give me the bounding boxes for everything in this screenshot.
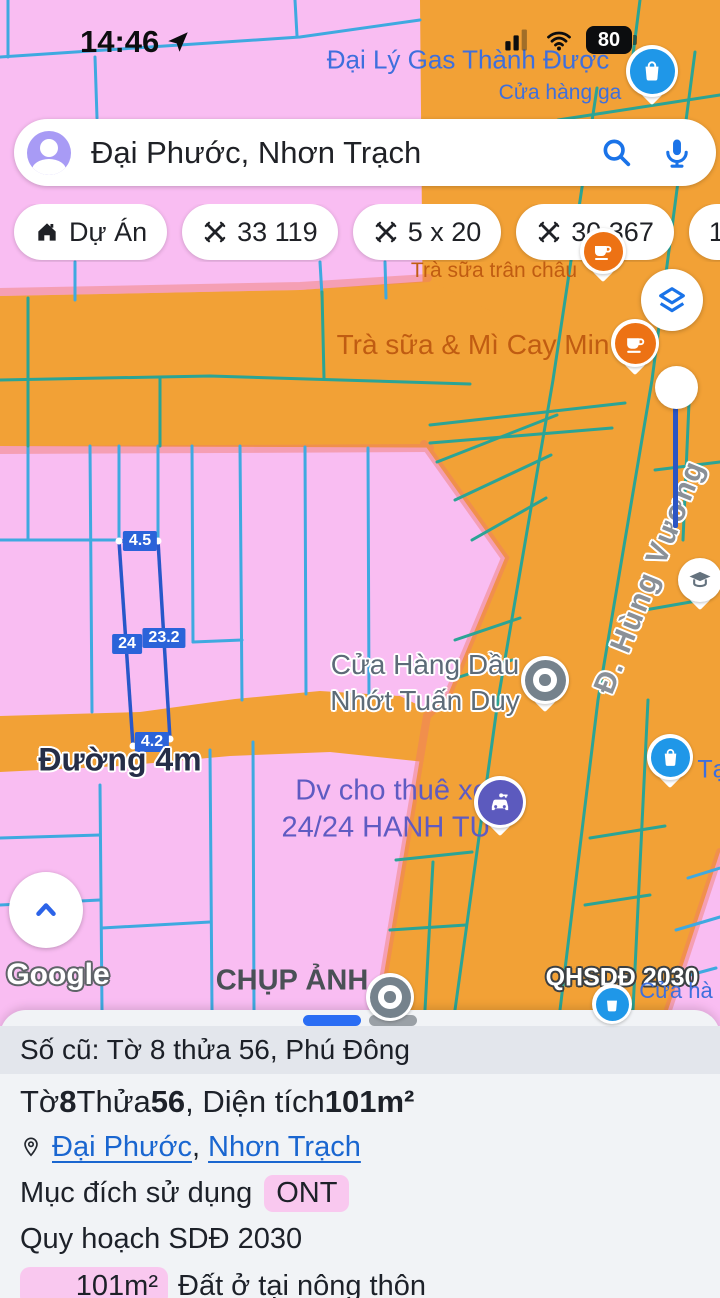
poi-label-rental-line2[interactable]: 24/24 HANH TÚ	[282, 812, 491, 845]
map-pin-ta[interactable]	[647, 734, 693, 780]
title-text: Tờ	[20, 1084, 59, 1120]
poi-label-gas-sub: Cửa hàng ga	[499, 81, 622, 105]
title-text: , Diện tích	[185, 1084, 325, 1120]
house-icon	[34, 219, 60, 245]
microphone-icon[interactable]	[660, 136, 694, 170]
app-screen: 4.5 24 23.2 4.2 Đại Lý Gas Thành Được Cử…	[0, 0, 720, 1298]
zoning-area-badge: 101m²	[20, 1267, 168, 1298]
layers-icon	[655, 283, 689, 317]
wifi-icon	[544, 26, 574, 54]
poi-label-cua-ha[interactable]: Cửa hà	[639, 978, 712, 1004]
chip-label: 33 119	[237, 217, 318, 248]
layers-button[interactable]	[641, 269, 703, 331]
cellular-signal-icon	[502, 26, 532, 54]
poi-label-oil-shop-line2[interactable]: Nhớt Tuấn Duy	[330, 685, 520, 717]
ward-link[interactable]: Đại Phước	[52, 1131, 192, 1164]
chip-100m2[interactable]: 100m² t	[689, 204, 720, 260]
crossed-rulers-icon	[373, 219, 399, 245]
map-pin-tea-small[interactable]	[580, 228, 626, 274]
plan-text: Quy hoạch SDĐ 2030	[20, 1223, 302, 1256]
chip-label: 100m² t	[709, 217, 720, 248]
expand-up-button[interactable]	[9, 872, 83, 948]
location-separator: ,	[192, 1131, 200, 1164]
shopping-bag-icon	[659, 746, 682, 769]
poi-label-photo[interactable]: CHỤP ẢNH	[216, 965, 369, 998]
chip-label: 5 x 20	[408, 217, 482, 248]
status-bar: 14:46 80	[0, 22, 720, 62]
area-value: 101m²	[325, 1084, 415, 1120]
poi-dot-icon	[378, 985, 403, 1010]
plan-row: Quy hoạch SDĐ 2030	[20, 1223, 700, 1256]
poi-label-oil-shop-line1[interactable]: Cửa Hàng Dầu	[331, 649, 519, 681]
search-input[interactable]: Đại Phước, Nhơn Trạch	[91, 135, 600, 171]
dimension-label-top: 4.5	[123, 531, 157, 551]
poi-label-rental-line1[interactable]: Dv cho thuê xe	[295, 775, 488, 808]
poi-label-tea-small[interactable]: Trà sữa trân châu	[411, 259, 577, 283]
map-pin-cua-ha[interactable]	[592, 984, 632, 1024]
location-arrow-icon	[165, 29, 191, 55]
location-pin-icon	[20, 1136, 42, 1158]
battery-percent: 80	[598, 29, 620, 52]
chip-du-an[interactable]: Dự Án	[14, 204, 167, 260]
zoning-row: 101m² Đất ở tại nông thôn	[20, 1267, 700, 1298]
search-icon[interactable]	[600, 136, 634, 170]
poi-label-ta[interactable]: Tạ	[697, 756, 720, 785]
title-text: Thửa	[77, 1084, 151, 1120]
clock: 14:46	[80, 24, 191, 60]
crossed-rulers-icon	[202, 219, 228, 245]
slider-handle[interactable]	[655, 366, 698, 409]
chip-label: Dự Án	[69, 217, 147, 248]
old-reference-text: Số cũ: Tờ 8 thửa 56, Phú Đông	[20, 1034, 410, 1065]
shopping-bag-icon	[639, 58, 665, 84]
crossed-rulers-icon	[536, 219, 562, 245]
shopping-bag-icon	[602, 994, 622, 1014]
dimension-label-left: 24	[112, 634, 142, 654]
chip-33119[interactable]: 33 119	[182, 204, 338, 260]
battery-indicator: 80	[586, 26, 632, 54]
chip-5x20[interactable]: 5 x 20	[353, 204, 502, 260]
poi-label-tea-big[interactable]: Trà sữa & Mì Cay Min	[337, 329, 610, 361]
pager-dot-active[interactable]	[303, 1015, 361, 1026]
location-row: Đại Phước, Nhơn Trạch	[20, 1131, 700, 1164]
zoning-description: Đất ở tại nông thôn	[178, 1270, 426, 1298]
map-pin-photo[interactable]	[366, 973, 414, 1021]
coffee-cup-icon	[591, 239, 615, 263]
chevron-up-icon	[28, 892, 64, 928]
usage-row: Mục đích sử dụng ONT	[20, 1175, 700, 1212]
map-pin-car-rental[interactable]	[474, 776, 526, 828]
poi-dot-icon	[533, 668, 558, 693]
account-avatar[interactable]	[27, 131, 71, 175]
slider-track[interactable]	[673, 406, 678, 528]
google-watermark: Google	[6, 958, 109, 992]
map-pin-tea-big[interactable]	[611, 319, 659, 367]
old-reference-row: Số cũ: Tờ 8 thửa 56, Phú Đông	[0, 1026, 720, 1074]
parcel-title-row: Tờ 8 Thửa 56, Diện tích 101m²	[20, 1084, 700, 1120]
sheet-number: 8	[59, 1084, 76, 1120]
parcel-info-sheet[interactable]: Số cũ: Tờ 8 thửa 56, Phú Đông Tờ 8 Thửa …	[0, 1010, 720, 1298]
road-label-4m: Đường 4m	[38, 742, 201, 779]
map-pin-oil-shop[interactable]	[521, 656, 569, 704]
coffee-cup-icon	[623, 331, 648, 356]
usage-badge: ONT	[264, 1175, 349, 1212]
car-key-icon	[486, 788, 514, 816]
time-text: 14:46	[80, 24, 159, 60]
district-link[interactable]: Nhơn Trạch	[208, 1131, 361, 1164]
map-pin-gas-store[interactable]	[626, 45, 678, 97]
usage-label: Mục đích sử dụng	[20, 1177, 252, 1210]
dimension-label-right: 23.2	[142, 628, 185, 648]
search-bar[interactable]: Đại Phước, Nhơn Trạch	[14, 119, 716, 186]
graduation-cap-icon	[686, 566, 714, 594]
plot-number: 56	[151, 1084, 185, 1120]
map-pin-school[interactable]	[678, 558, 720, 602]
